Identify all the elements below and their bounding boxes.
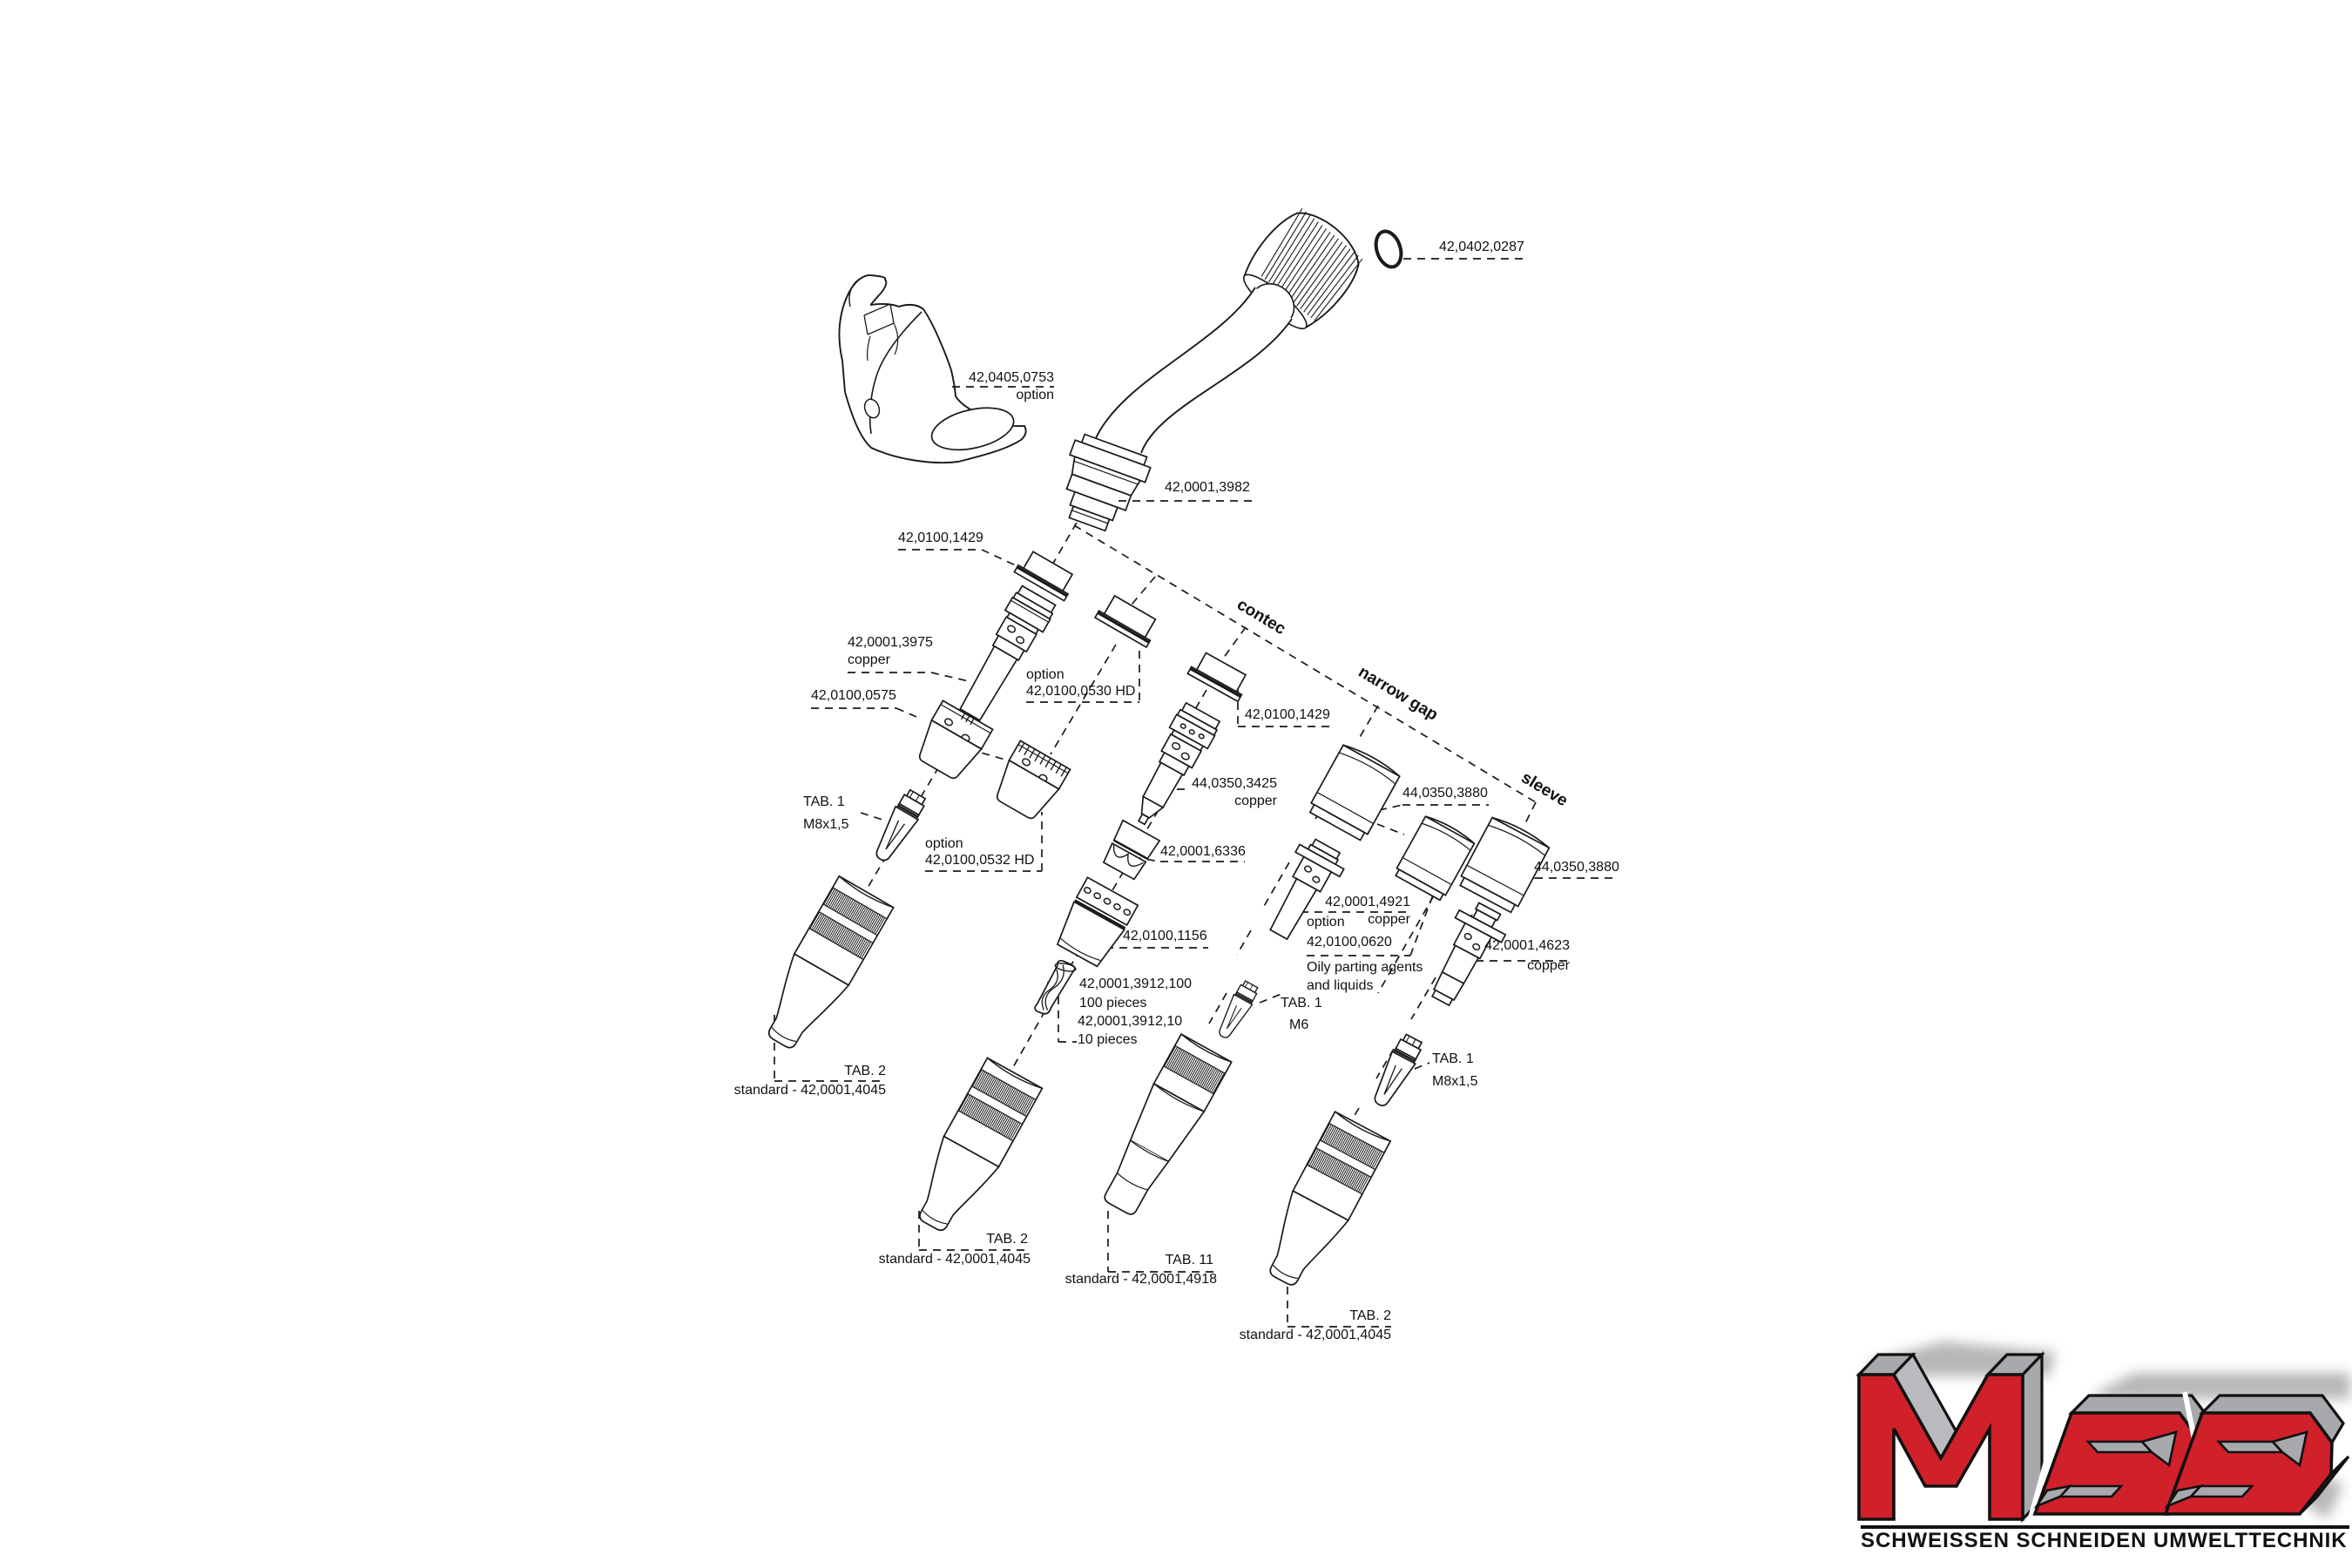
svg-text:copper: copper — [848, 652, 891, 667]
svg-text:42,0100,1429: 42,0100,1429 — [1245, 707, 1330, 722]
svg-text:42,0100,0532 HD: 42,0100,0532 HD — [925, 853, 1034, 868]
svg-text:option: option — [925, 836, 963, 851]
svg-text:M8x1,5: M8x1,5 — [803, 817, 849, 832]
svg-text:10 pieces: 10 pieces — [1078, 1032, 1138, 1047]
svg-text:standard - 42,0001,4045: standard - 42,0001,4045 — [1240, 1328, 1391, 1342]
svg-text:TAB. 2: TAB. 2 — [986, 1232, 1028, 1247]
svg-text:44,0350,3425: 44,0350,3425 — [1192, 776, 1277, 791]
svg-text:TAB. 1: TAB. 1 — [1432, 1051, 1474, 1066]
svg-text:and liquids: and liquids — [1307, 978, 1374, 993]
svg-text:M8x1,5: M8x1,5 — [1432, 1074, 1478, 1089]
svg-text:42,0405,0753: 42,0405,0753 — [969, 370, 1054, 385]
svg-text:42,0001,4921: 42,0001,4921 — [1325, 895, 1410, 909]
svg-text:M6: M6 — [1289, 1017, 1308, 1032]
svg-text:42,0001,3975: 42,0001,3975 — [848, 635, 933, 650]
svg-text:42,0001,3912,100: 42,0001,3912,100 — [1079, 977, 1192, 991]
svg-text:SCHWEISSEN SCHNEIDEN UMWELTTEC: SCHWEISSEN SCHNEIDEN UMWELTTECHNIK — [1861, 1529, 2348, 1552]
svg-text:42,0100,1429: 42,0100,1429 — [898, 531, 983, 545]
svg-text:option: option — [1026, 667, 1064, 682]
svg-text:TAB. 2: TAB. 2 — [844, 1064, 886, 1078]
svg-text:TAB. 2: TAB. 2 — [1349, 1308, 1391, 1323]
svg-text:copper: copper — [1234, 794, 1278, 808]
svg-text:standard - 42,0001,4045: standard - 42,0001,4045 — [734, 1083, 886, 1098]
svg-text:42,0100,0530 HD: 42,0100,0530 HD — [1026, 684, 1135, 699]
svg-text:standard - 42,0001,4045: standard - 42,0001,4045 — [879, 1252, 1031, 1267]
svg-text:option: option — [1016, 388, 1054, 402]
svg-text:standard - 42,0001,4918: standard - 42,0001,4918 — [1065, 1272, 1217, 1287]
svg-text:42,0100,1156: 42,0100,1156 — [1123, 929, 1207, 943]
svg-text:42,0001,3912,10: 42,0001,3912,10 — [1078, 1014, 1182, 1029]
svg-text:copper: copper — [1527, 958, 1571, 973]
svg-text:TAB. 1: TAB. 1 — [803, 794, 845, 809]
svg-text:42,0100,0620: 42,0100,0620 — [1307, 935, 1392, 950]
svg-text:100 pieces: 100 pieces — [1079, 996, 1146, 1010]
svg-text:42,0100,0575: 42,0100,0575 — [811, 688, 896, 703]
svg-text:44,0350,3880: 44,0350,3880 — [1402, 786, 1488, 801]
svg-text:42,0001,4623: 42,0001,4623 — [1484, 938, 1570, 953]
svg-text:42,0001,3982: 42,0001,3982 — [1165, 480, 1250, 495]
svg-text:44,0350,3880: 44,0350,3880 — [1534, 860, 1619, 875]
svg-text:TAB. 1: TAB. 1 — [1281, 996, 1322, 1010]
svg-text:42,0001,6336: 42,0001,6336 — [1160, 844, 1246, 859]
svg-text:option: option — [1307, 915, 1345, 929]
svg-text:TAB. 11: TAB. 11 — [1166, 1253, 1214, 1267]
svg-text:copper: copper — [1368, 912, 1411, 927]
svg-text:Oily parting agents: Oily parting agents — [1307, 960, 1423, 975]
svg-text:42,0402,0287: 42,0402,0287 — [1439, 240, 1524, 254]
